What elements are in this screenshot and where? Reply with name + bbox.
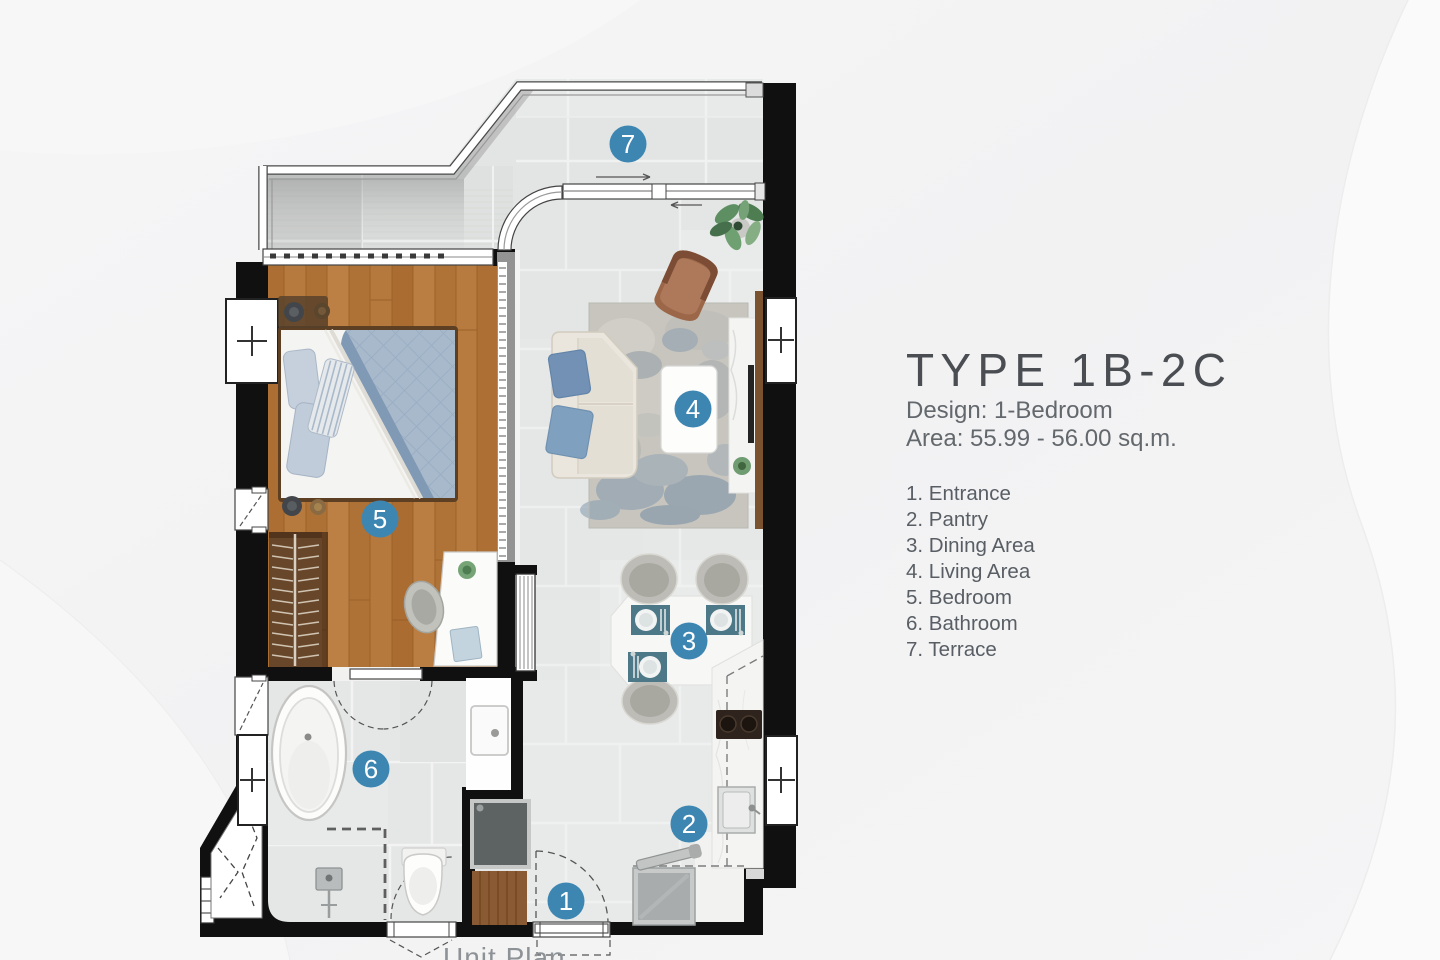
svg-text:1: 1 <box>559 886 573 916</box>
svg-text:Design: 1-Bedroom: Design: 1-Bedroom <box>906 397 1113 424</box>
svg-text:3. Dining Area: 3. Dining Area <box>906 534 1035 557</box>
svg-text:4. Living Area: 4. Living Area <box>906 560 1031 583</box>
svg-text:TYPE 1B-2C: TYPE 1B-2C <box>906 344 1232 396</box>
svg-text:2. Pantry: 2. Pantry <box>906 508 989 531</box>
svg-text:7. Terrace: 7. Terrace <box>906 638 997 661</box>
svg-text:3: 3 <box>682 626 696 656</box>
svg-text:Area: 55.99 - 56.00 sq.m.: Area: 55.99 - 56.00 sq.m. <box>906 425 1177 452</box>
svg-text:6. Bathroom: 6. Bathroom <box>906 612 1018 635</box>
svg-text:4: 4 <box>686 394 700 424</box>
svg-text:1. Entrance: 1. Entrance <box>906 482 1011 505</box>
svg-text:2: 2 <box>682 809 696 839</box>
svg-text:7: 7 <box>621 129 635 159</box>
svg-text:5. Bedroom: 5. Bedroom <box>906 586 1012 609</box>
svg-text:6: 6 <box>364 754 378 784</box>
svg-text:5: 5 <box>373 504 387 534</box>
svg-text:Unit Plan: Unit Plan <box>443 942 566 960</box>
